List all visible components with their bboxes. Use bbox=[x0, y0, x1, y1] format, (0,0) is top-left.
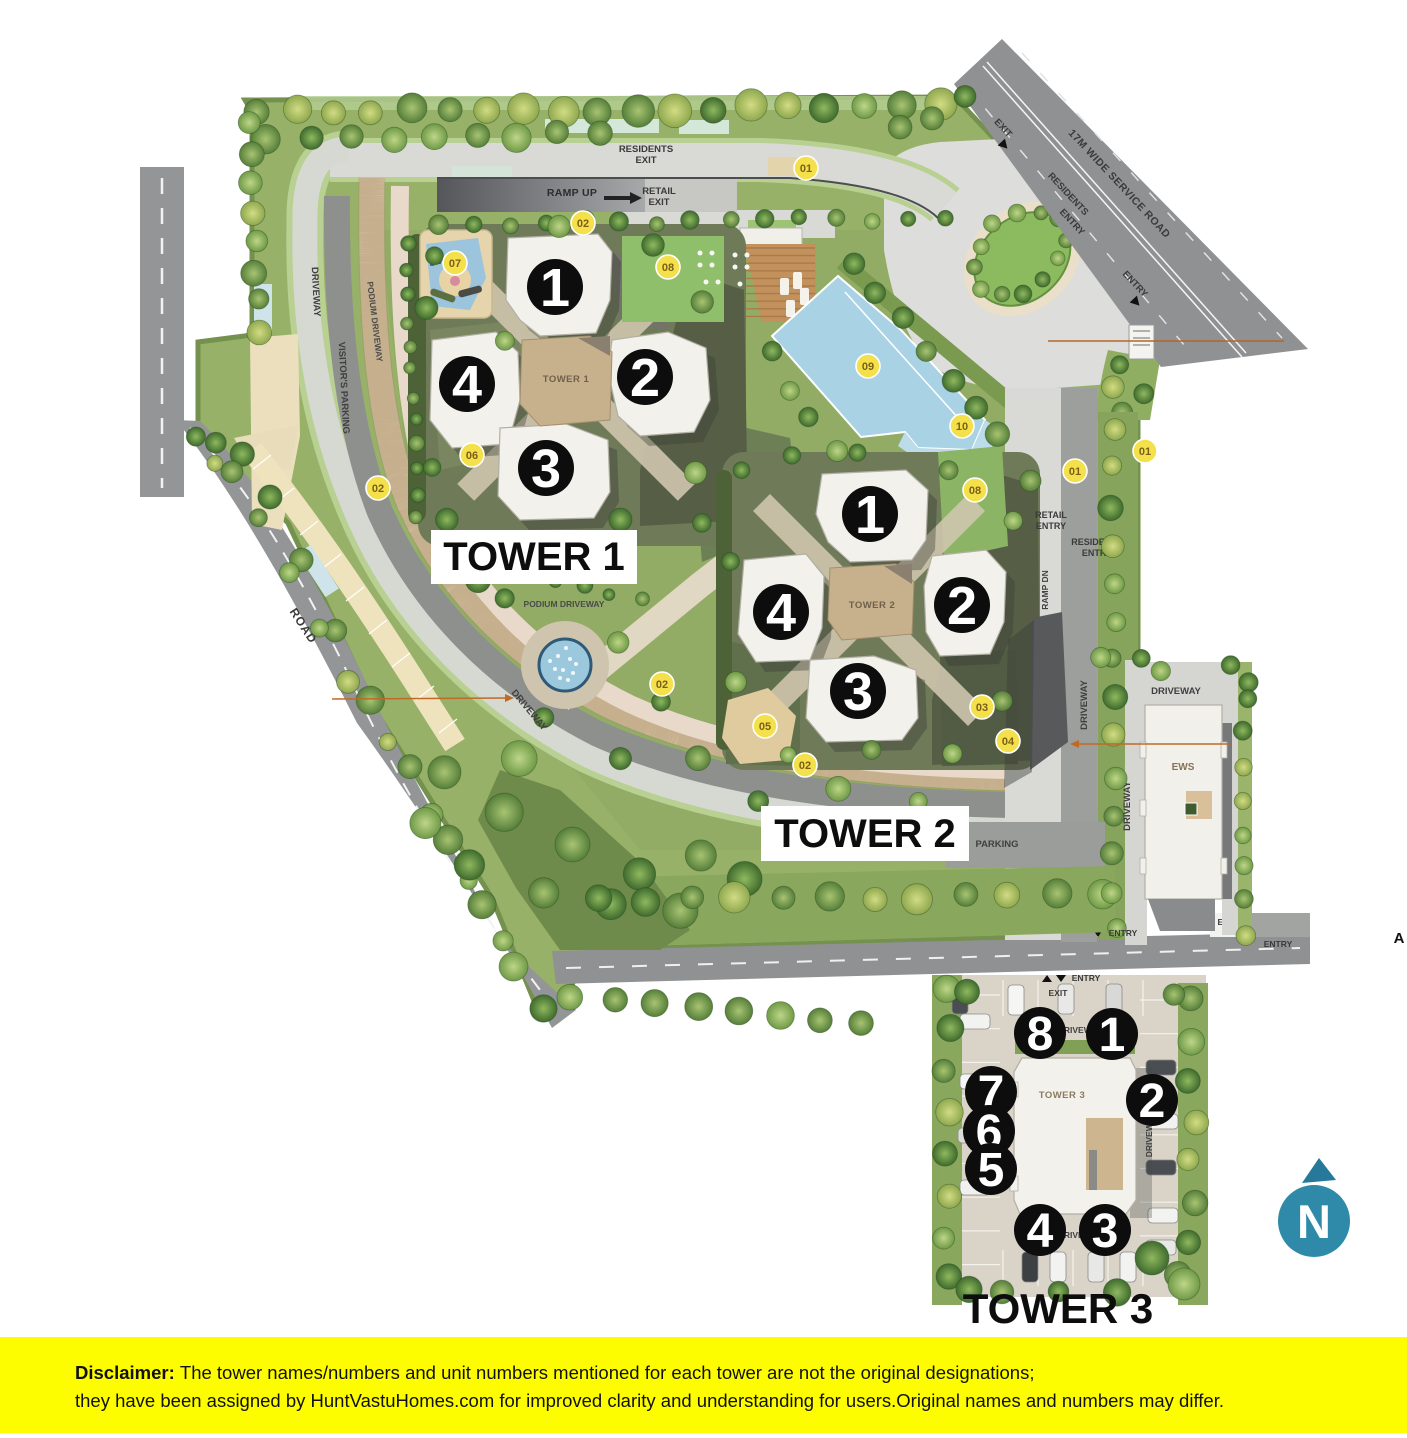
svg-text:EXIT: EXIT bbox=[635, 155, 656, 166]
svg-text:EWS: EWS bbox=[1172, 762, 1195, 773]
svg-text:08: 08 bbox=[969, 485, 981, 497]
svg-text:TOWER 3: TOWER 3 bbox=[963, 1285, 1154, 1332]
svg-text:02: 02 bbox=[656, 679, 668, 691]
svg-text:N: N bbox=[1297, 1195, 1331, 1248]
svg-text:RAMP DN: RAMP DN bbox=[1040, 570, 1050, 610]
svg-text:ENTRY: ENTRY bbox=[1109, 928, 1138, 938]
svg-text:05: 05 bbox=[759, 721, 771, 733]
svg-text:DRIVEWAY: DRIVEWAY bbox=[1122, 780, 1133, 830]
svg-text:06: 06 bbox=[466, 450, 478, 462]
svg-text:3: 3 bbox=[1092, 1205, 1119, 1258]
svg-text:01: 01 bbox=[1069, 466, 1081, 478]
svg-text:DRIVEWAY: DRIVEWAY bbox=[1079, 679, 1090, 729]
svg-text:EXIT: EXIT bbox=[648, 197, 669, 208]
svg-text:3: 3 bbox=[843, 662, 873, 722]
svg-text:04: 04 bbox=[1002, 736, 1015, 748]
svg-text:RAMP UP: RAMP UP bbox=[547, 187, 597, 199]
svg-text:3: 3 bbox=[531, 439, 561, 499]
svg-text:02: 02 bbox=[577, 218, 589, 230]
svg-text:RESIDENTS: RESIDENTS bbox=[619, 144, 673, 155]
svg-text:Disclaimer: The tower names/nu: Disclaimer: The tower names/numbers and … bbox=[75, 1362, 1034, 1383]
svg-text:TOWER 2: TOWER 2 bbox=[849, 600, 896, 611]
svg-text:TOWER 1: TOWER 1 bbox=[543, 374, 590, 385]
svg-text:PODIUM DRIVEWAY: PODIUM DRIVEWAY bbox=[524, 599, 605, 609]
svg-text:5: 5 bbox=[978, 1144, 1005, 1197]
svg-text:03: 03 bbox=[976, 702, 988, 714]
svg-text:TOWER 2: TOWER 2 bbox=[774, 812, 956, 856]
svg-text:1: 1 bbox=[540, 258, 570, 318]
svg-text:01: 01 bbox=[800, 163, 812, 175]
svg-text:RETAIL: RETAIL bbox=[642, 186, 676, 197]
svg-text:PARKING: PARKING bbox=[975, 839, 1018, 850]
svg-text:02: 02 bbox=[372, 483, 384, 495]
svg-text:2: 2 bbox=[947, 576, 977, 636]
svg-text:10: 10 bbox=[956, 421, 968, 433]
svg-text:4: 4 bbox=[452, 355, 482, 415]
svg-text:DRIVEWAY: DRIVEWAY bbox=[1151, 686, 1201, 697]
svg-text:TOWER 3: TOWER 3 bbox=[1039, 1090, 1086, 1101]
svg-text:A: A bbox=[1394, 930, 1405, 947]
svg-text:2: 2 bbox=[1139, 1075, 1166, 1128]
svg-text:4: 4 bbox=[1027, 1205, 1054, 1258]
svg-text:TOWER 1: TOWER 1 bbox=[443, 535, 625, 579]
svg-text:8: 8 bbox=[1027, 1008, 1054, 1061]
svg-text:07: 07 bbox=[449, 258, 461, 270]
svg-text:ENTRY: ENTRY bbox=[1036, 521, 1066, 531]
svg-text:08: 08 bbox=[662, 262, 674, 274]
svg-text:01: 01 bbox=[1139, 446, 1151, 458]
svg-text:1: 1 bbox=[855, 485, 885, 545]
svg-text:RETAIL: RETAIL bbox=[1035, 510, 1067, 520]
svg-text:1: 1 bbox=[1099, 1009, 1126, 1062]
svg-text:4: 4 bbox=[766, 583, 796, 643]
svg-text:ENTRY: ENTRY bbox=[1072, 973, 1101, 983]
svg-text:EXIT: EXIT bbox=[1049, 988, 1069, 998]
svg-text:they have been assigned by Hun: they have been assigned by HuntVastuHome… bbox=[75, 1390, 1224, 1411]
svg-text:2: 2 bbox=[630, 348, 660, 408]
svg-text:ENTRY: ENTRY bbox=[1264, 939, 1293, 949]
svg-text:02: 02 bbox=[799, 760, 811, 772]
svg-text:09: 09 bbox=[862, 361, 874, 373]
